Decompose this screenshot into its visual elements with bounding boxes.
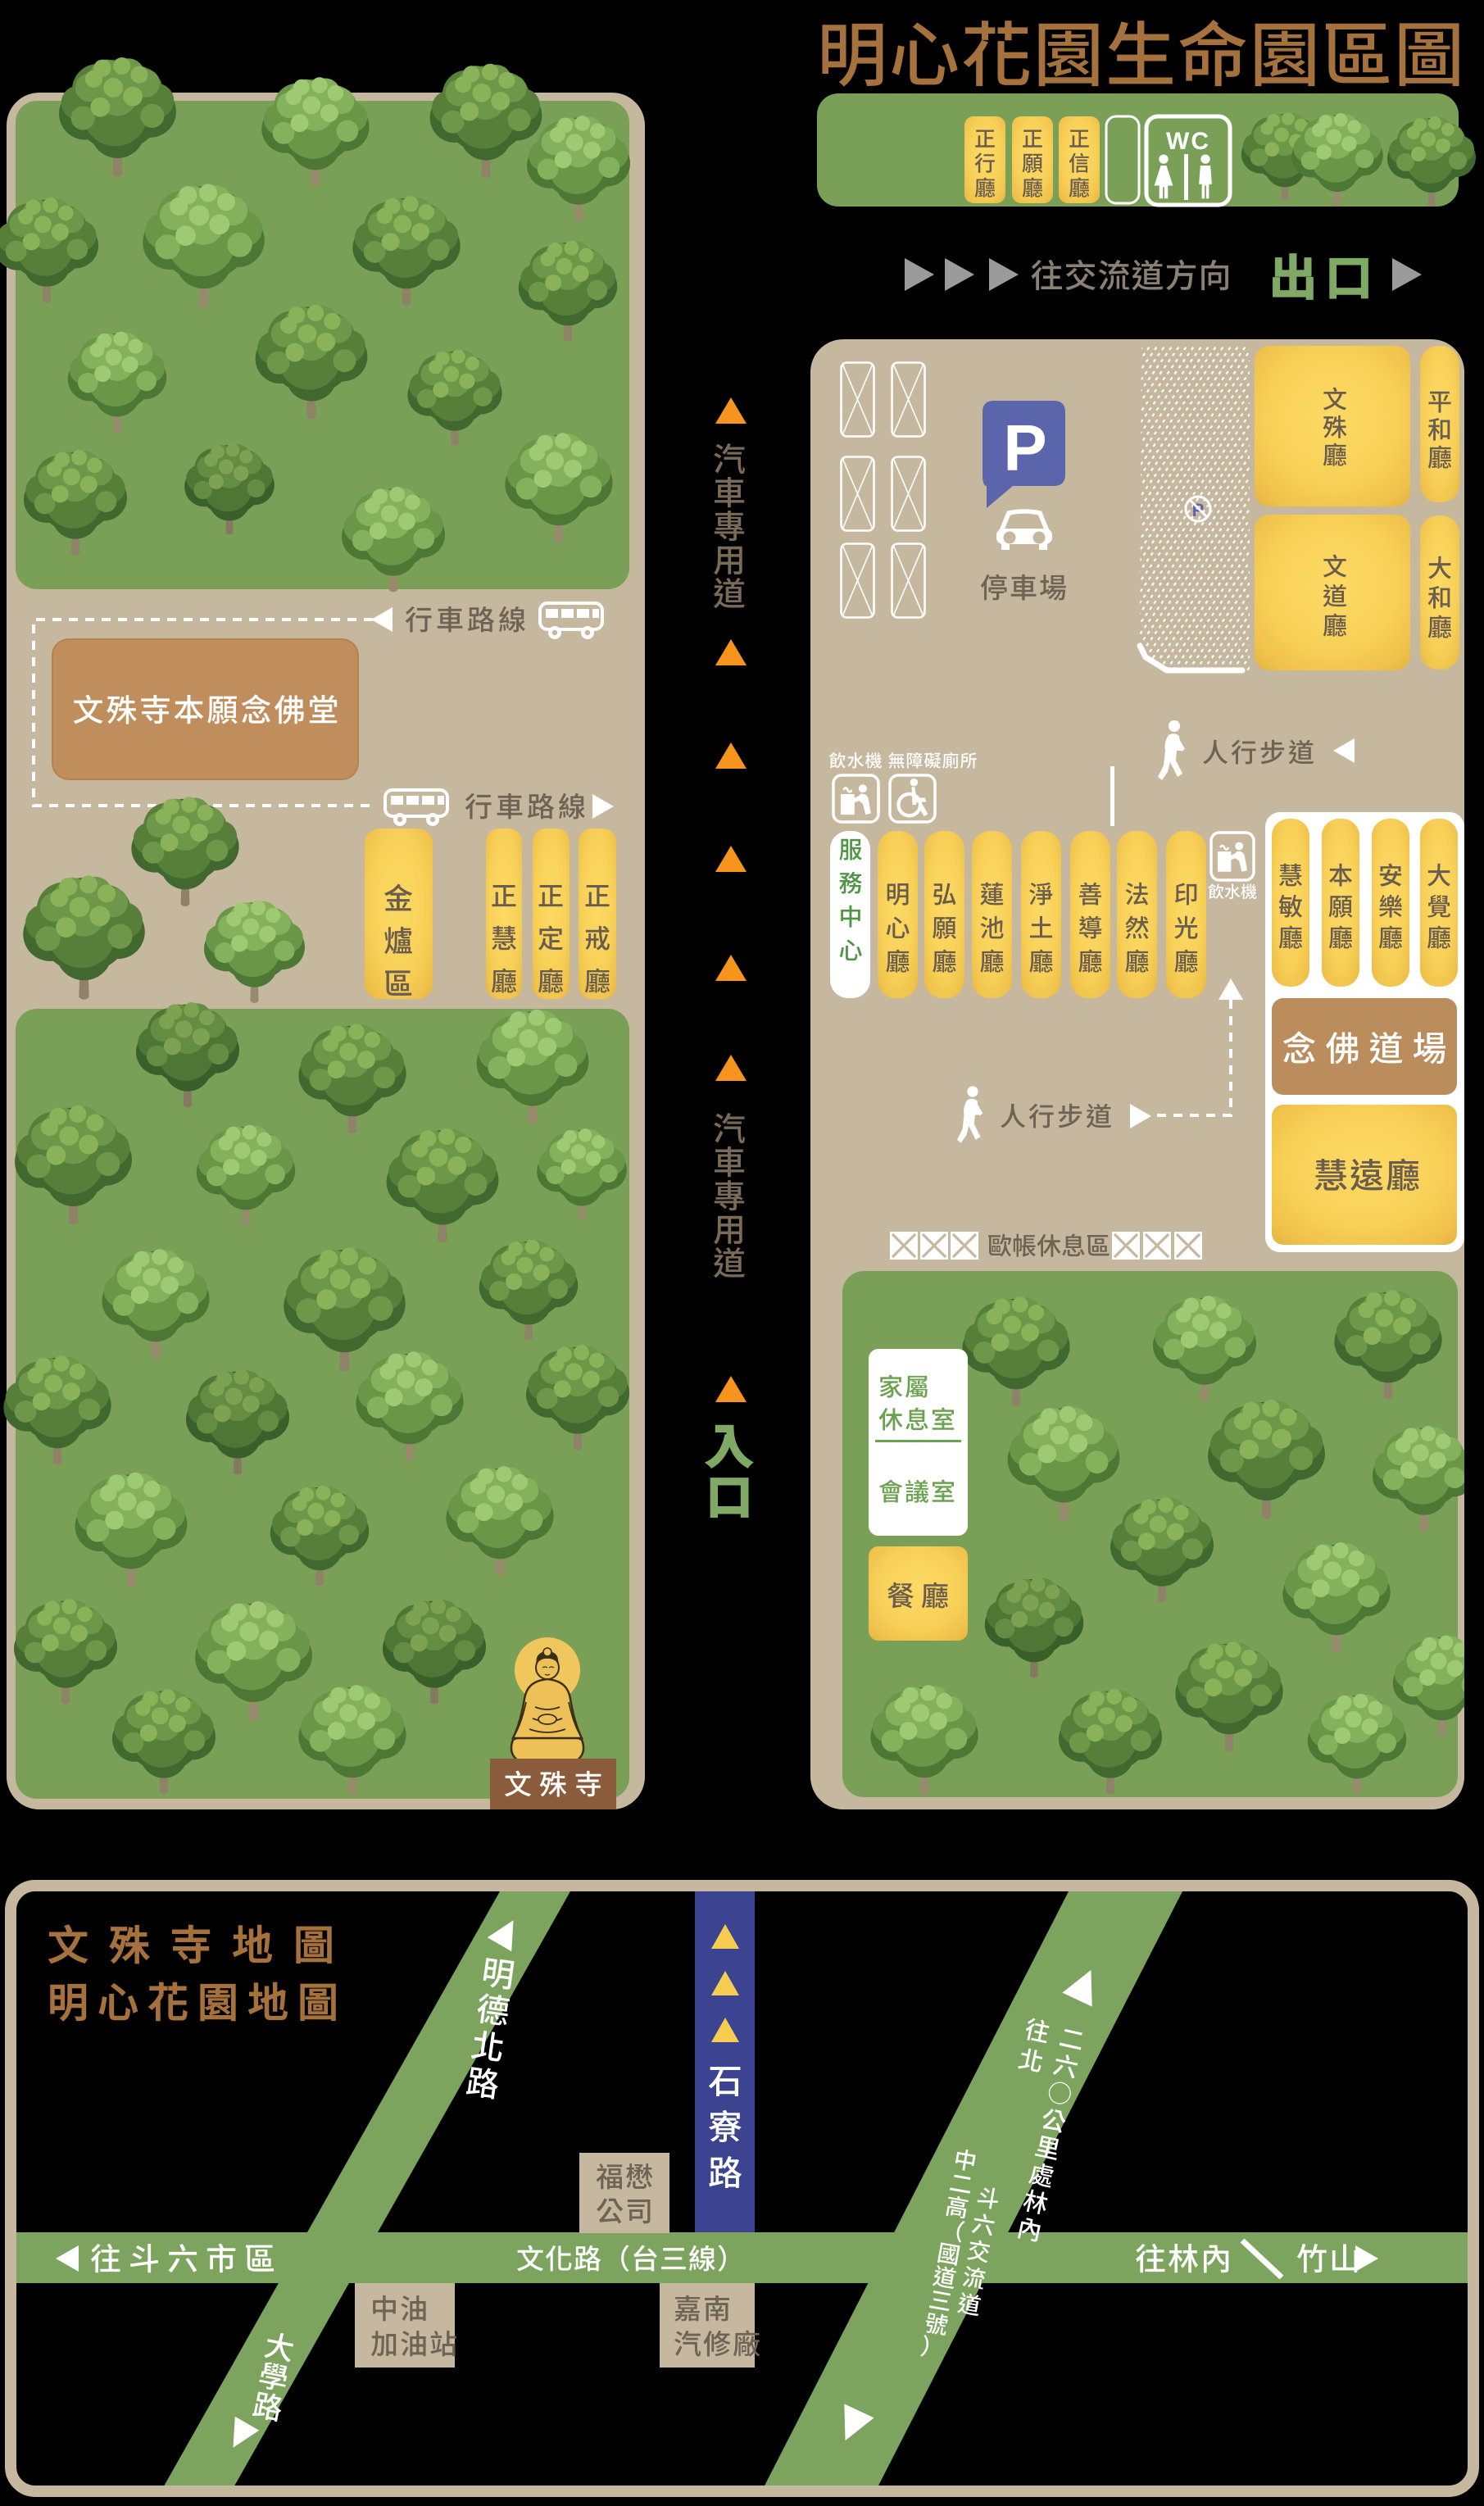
svg-text:WC: WC [1166,128,1210,155]
svg-text:P: P [1003,411,1046,484]
